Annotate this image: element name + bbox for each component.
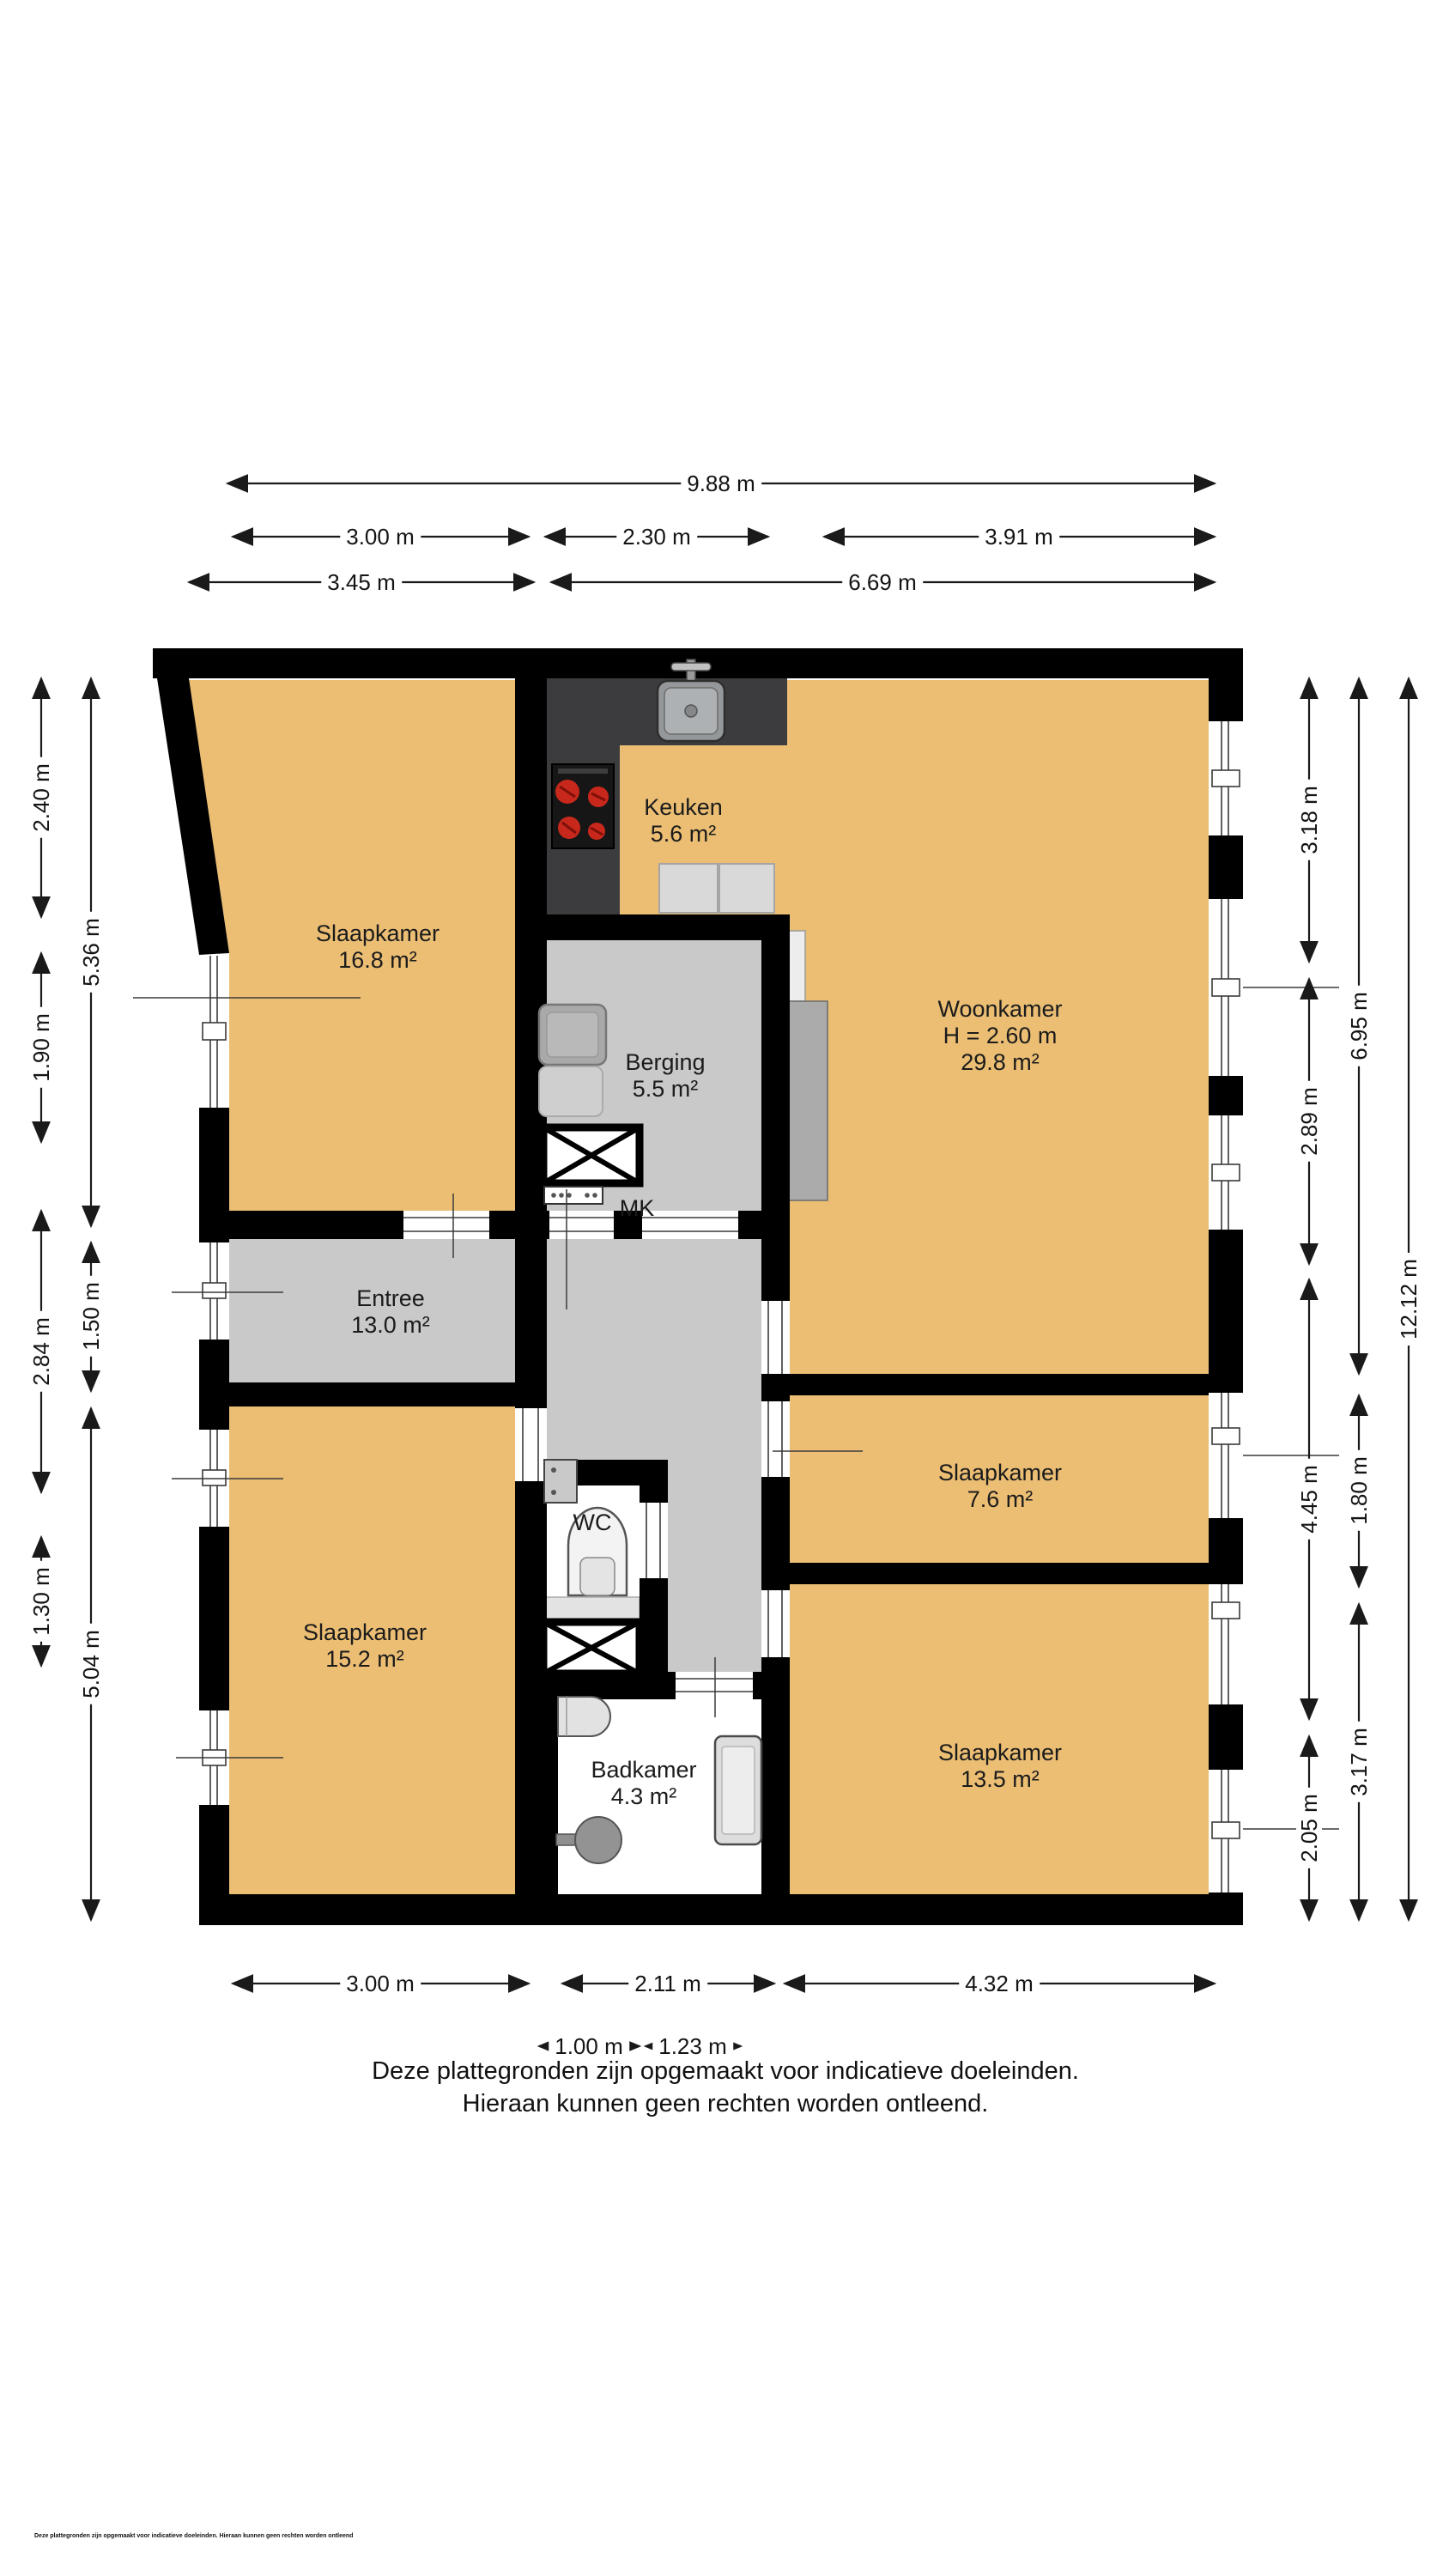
room-area: 13.5 m²	[961, 1766, 1040, 1792]
window	[199, 956, 229, 1108]
dim-label: 3.00 m	[340, 1971, 421, 1996]
wall-entree-top	[229, 1211, 403, 1239]
dim-label: 1.90 m	[28, 1007, 54, 1088]
room-area: 15.2 m²	[325, 1646, 404, 1672]
bathtub-icon	[715, 1736, 761, 1844]
window	[1209, 1584, 1243, 1704]
door-opening	[640, 1503, 668, 1578]
shaft-icon	[543, 1127, 640, 1183]
room-name: Slaapkamer	[938, 1740, 1062, 1765]
kitchen-cabinet	[659, 864, 718, 913]
disclaimer-line-2: Hieraan kunnen geen rechten worden ontle…	[463, 2090, 989, 2118]
room-ceiling-height: H = 2.60 m	[943, 1023, 1058, 1048]
wall-right	[1209, 1704, 1243, 1770]
wall-right	[1209, 1230, 1243, 1393]
dim-label: 9.88 m	[681, 471, 761, 496]
wall-corridor	[761, 914, 790, 1301]
wall-bottom	[199, 1894, 1243, 1925]
wall-right	[1209, 1893, 1243, 1925]
dim-label: 3.45 m	[321, 569, 402, 595]
door-opening	[676, 1672, 753, 1699]
dim-label: 5.36 m	[78, 912, 104, 993]
window	[1209, 1115, 1243, 1230]
dim-label: 2.84 m	[28, 1311, 54, 1392]
wall-left	[199, 1527, 229, 1710]
room-label-slaapkamer-sw: Slaapkamer 15.2 m²	[303, 1619, 427, 1673]
dim-label: 2.05 m	[1296, 1788, 1322, 1868]
shaft-icon	[543, 1622, 640, 1674]
wall-corridor	[761, 1477, 790, 1590]
window	[1209, 1393, 1243, 1518]
dim-label: 1.00 m	[549, 2033, 629, 2059]
door-opening	[761, 1401, 790, 1477]
dim-label: 6.95 m	[1346, 986, 1372, 1066]
dim-label: 4.32 m	[959, 1971, 1040, 1996]
room-label-woonkamer: Woonkamer H = 2.60 m 29.8 m²	[937, 996, 1062, 1076]
wall-right	[1209, 835, 1243, 899]
dim-label: 1.50 m	[78, 1276, 104, 1357]
meter-cupboard-icon	[544, 1187, 603, 1204]
room-name: Slaapkamer	[316, 920, 440, 946]
wall-corridor	[761, 1374, 790, 1401]
room-area: 29.8 m²	[961, 1049, 1040, 1075]
door-opening	[403, 1211, 489, 1239]
room-area: 4.3 m²	[611, 1783, 677, 1809]
room-label-mk: MK	[620, 1195, 655, 1222]
room-label-berging: Berging 5.5 m²	[625, 1049, 705, 1103]
room-name: Badkamer	[591, 1757, 696, 1783]
dim-label: 3.91 m	[979, 524, 1059, 550]
dim-label: 6.69 m	[842, 569, 923, 595]
floor-fills	[189, 680, 1209, 1894]
dim-label: 3.00 m	[340, 524, 421, 550]
wall-right	[1209, 648, 1243, 721]
dim-label: 4.45 m	[1296, 1459, 1322, 1540]
floorplan-page: 9.88 m 3.00 m 2.30 m 3.91 m 3.45 m 6.69 …	[0, 0, 1449, 2576]
room-name: Slaapkamer	[938, 1460, 1062, 1485]
wall-recess	[788, 931, 805, 1001]
room-name: Berging	[625, 1049, 705, 1075]
wall-entree-slaapkamer	[229, 1382, 547, 1406]
room-area: 16.8 m²	[338, 947, 417, 973]
wall-badkamer-top	[753, 1672, 790, 1699]
window	[1209, 1770, 1243, 1893]
door-opening	[549, 1211, 614, 1239]
room-area: 7.6 m²	[967, 1486, 1034, 1512]
floorplan-drawing	[0, 0, 1449, 2576]
washing-machine-icon	[539, 1005, 606, 1116]
door-opening	[515, 1408, 547, 1481]
washbasin-icon	[558, 1697, 610, 1736]
room-label-entree: Entree 13.0 m²	[351, 1285, 430, 1339]
disclaimer-micro: Deze plattegronden zijn opgemaakt voor i…	[34, 2533, 353, 2539]
dim-label: 5.04 m	[78, 1624, 104, 1704]
room-label-slaapkamer-nw: Slaapkamer 16.8 m²	[316, 920, 440, 974]
room-name: Keuken	[644, 794, 723, 820]
dim-label: 2.30 m	[616, 524, 697, 550]
wc-sink-icon	[544, 1460, 577, 1503]
dim-label: 3.18 m	[1296, 780, 1322, 860]
dim-label: 3.17 m	[1346, 1722, 1372, 1802]
room-label-keuken: Keuken 5.6 m²	[644, 794, 723, 848]
window	[199, 1242, 229, 1340]
wall-left	[199, 1340, 229, 1430]
wall-right	[1209, 1518, 1243, 1584]
room-name: MK	[620, 1195, 655, 1221]
room-label-slaapkamer-se: Slaapkamer 13.5 m²	[938, 1740, 1062, 1793]
wall-left	[199, 1108, 229, 1242]
wall-between-bedrooms	[761, 1563, 1209, 1584]
kitchen-cabinet	[719, 864, 774, 913]
room-label-wc: WC	[573, 1510, 612, 1536]
room-name: Entree	[356, 1285, 425, 1311]
room-name: Woonkamer	[937, 996, 1062, 1022]
room-area: 13.0 m²	[351, 1312, 430, 1338]
room-name: Slaapkamer	[303, 1619, 427, 1645]
wall-right	[1209, 1076, 1243, 1115]
dim-label: 12.12 m	[1396, 1253, 1422, 1346]
window	[1209, 899, 1243, 1076]
dim-label: 1.80 m	[1346, 1450, 1372, 1531]
window	[1209, 721, 1243, 835]
door-opening	[761, 1301, 790, 1374]
room-area: 5.5 m²	[633, 1076, 699, 1102]
wall-keuken-berging	[543, 914, 761, 940]
wall-wc-right	[640, 1578, 668, 1672]
room-label-slaapkamer-e: Slaapkamer 7.6 m²	[938, 1460, 1062, 1513]
room-label-badkamer: Badkamer 4.3 m²	[591, 1757, 696, 1810]
dim-label: 2.40 m	[28, 757, 54, 838]
dim-label: 1.30 m	[28, 1561, 54, 1642]
room-area: 5.6 m²	[651, 821, 717, 847]
dim-label: 1.23 m	[652, 2033, 733, 2059]
wall-entree-top	[489, 1211, 549, 1239]
disclaimer-line-1: Deze plattegronden zijn opgemaakt voor i…	[372, 2057, 1079, 2086]
door-opening	[761, 1590, 790, 1657]
door-opening	[642, 1211, 738, 1239]
wall-woonkamer-bottom	[761, 1374, 1209, 1395]
dim-label: 2.89 m	[1296, 1081, 1322, 1162]
wall-badkamer-left	[530, 1699, 558, 1894]
room-name: WC	[573, 1510, 612, 1535]
cooktop-icon	[552, 764, 614, 848]
structural-column	[788, 1001, 828, 1200]
wall-wc-right	[640, 1485, 668, 1503]
dim-label: 2.11 m	[628, 1971, 707, 1996]
